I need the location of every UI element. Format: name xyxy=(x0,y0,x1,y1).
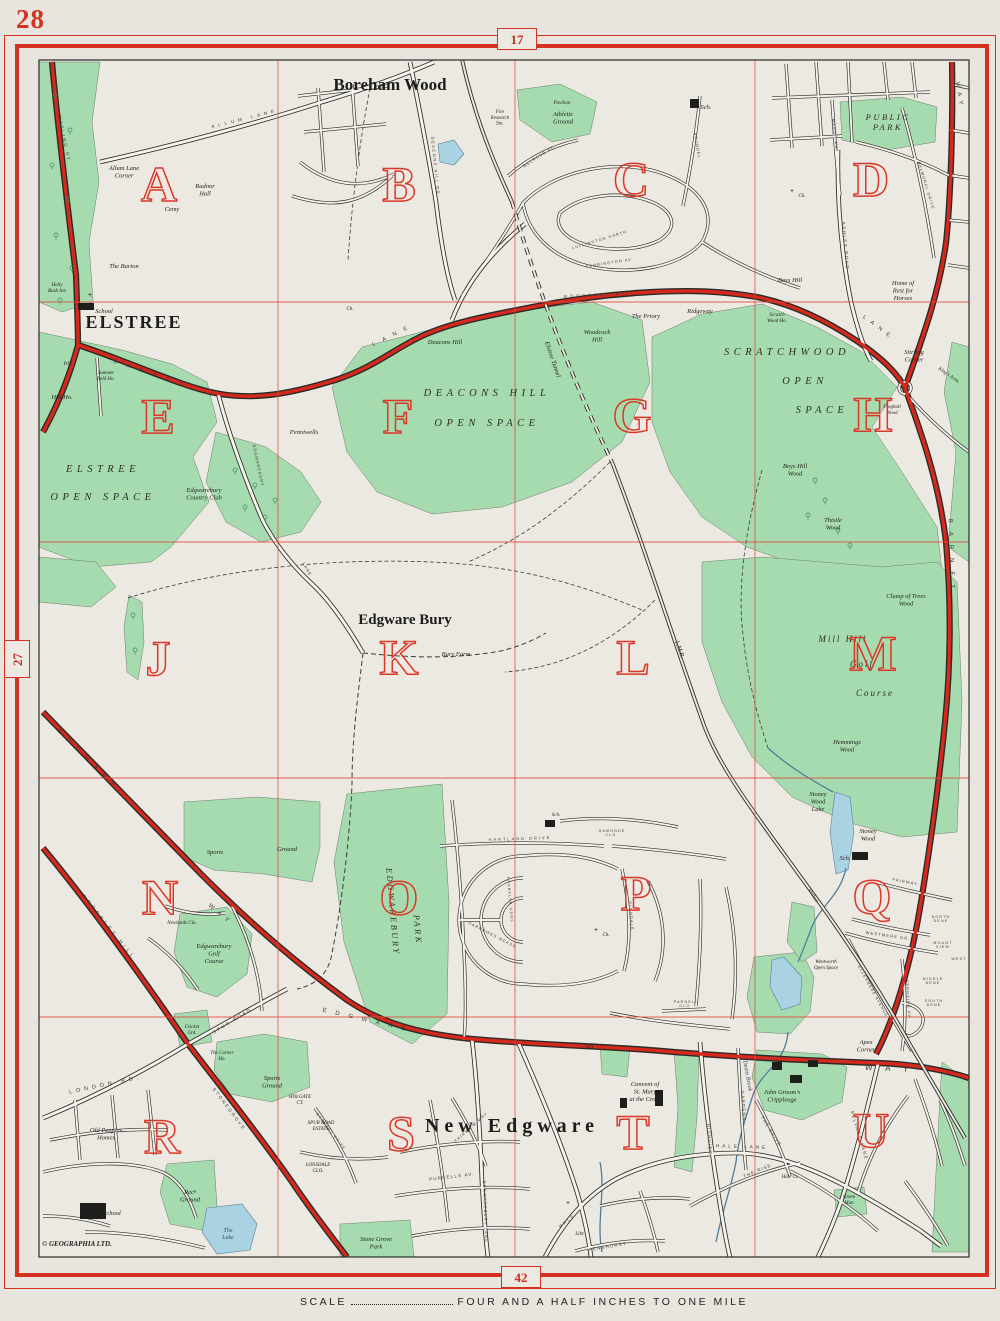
adjacent-page-bottom: 42 xyxy=(501,1266,541,1288)
label-course: Course xyxy=(856,688,894,698)
label-stoney-wood: StoneyWood xyxy=(859,828,876,842)
label-bury-farm: Bury Farm xyxy=(442,651,471,658)
label-summer-field-ho: Summerfield Ho. xyxy=(97,371,115,382)
green-area-watling-street-woods xyxy=(39,62,100,312)
grid-letter-F: F xyxy=(383,388,414,444)
label-edgware-bury: Edgware Bury xyxy=(358,612,452,628)
label-sch: Sch. xyxy=(552,813,560,818)
building-3 xyxy=(852,852,868,860)
adjacent-page-bottom-number: 42 xyxy=(515,1271,528,1284)
grid-letter-U: U xyxy=(853,1102,889,1158)
label-sports-ground: SportsGround xyxy=(262,1075,283,1089)
grid-letter-M: M xyxy=(849,625,896,681)
grid-letter-K: K xyxy=(380,629,419,685)
label-edgwarebury-country-club: EdgwareburyCountry Club xyxy=(185,487,222,501)
label-sch: Sch. xyxy=(839,855,850,862)
grid-letter-R: R xyxy=(144,1108,181,1164)
label-pavilion: Pavilion xyxy=(553,101,571,106)
label-open: OPEN xyxy=(782,376,827,387)
label-sch: Sch. xyxy=(700,104,711,111)
building-8 xyxy=(790,1075,802,1083)
label-ground: Ground xyxy=(277,846,298,853)
grid-letter-C: C xyxy=(613,151,649,207)
label-open-space: OPEN SPACE xyxy=(50,492,155,503)
label-ch: Ch. xyxy=(602,933,609,938)
grid-letter-B: B xyxy=(382,156,415,212)
grid-letter-Q: Q xyxy=(853,868,892,924)
label-ch: Ch. xyxy=(346,307,353,312)
grid-letter-P: P xyxy=(621,865,652,921)
label-elstree: ELSTREE xyxy=(65,464,140,475)
label-john-groom-s-crippleage: John Groom'sCrippleage xyxy=(764,1089,801,1103)
adjacent-page-left-number: 27 xyxy=(11,653,24,666)
church-cross-icon: + xyxy=(566,1199,570,1207)
label-north-dene: NORTHDENE xyxy=(932,915,951,923)
label-open-space: OPEN SPACE xyxy=(434,418,539,429)
copyright-notice: © GEOGRAPHIA LTD. xyxy=(42,1240,112,1248)
label-space: SPACE xyxy=(796,405,849,416)
scale-label: SCALE xyxy=(300,1296,347,1308)
label-thistle-wood: ThistleWood xyxy=(824,517,842,531)
label-boys-hill: Boys Hill xyxy=(778,277,803,284)
label-stirling-corner: StirlingCorner xyxy=(904,349,924,363)
scale-text: FOUR AND A HALF INCHES TO ONE MILE xyxy=(457,1296,748,1308)
building-9 xyxy=(808,1060,818,1067)
label-the-priory: The Priory xyxy=(632,313,660,320)
grid-letter-A: A xyxy=(141,156,177,212)
label-scratch-wood-ho: ScratchWood Ho. xyxy=(767,313,787,324)
adjacent-page-top-number: 17 xyxy=(511,33,524,46)
grid-letter-N: N xyxy=(142,869,178,925)
label-south-dene: SOUTHDENE xyxy=(925,999,944,1007)
label-scratchwood: SCRATCHWOOD xyxy=(724,347,850,358)
label-hill-ho: Hill Ho. xyxy=(50,394,73,401)
label-p-o: P.O. xyxy=(585,1046,595,1051)
label-the-lake: TheLake xyxy=(221,1228,234,1241)
grid-letter-D: D xyxy=(853,151,889,207)
scale-leader xyxy=(351,1304,453,1305)
label-boreham-wood: Boreham Wood xyxy=(333,75,447,94)
label-wentworth-open-space: WentworthOpen Space xyxy=(814,960,839,971)
map-canvas: ++++Boreham WoodELSTREEEdgware BuryNew E… xyxy=(0,0,1000,1321)
label-penniwells: Penniwells xyxy=(289,429,319,436)
label-deacons-hill: Deacons Hill xyxy=(427,339,463,346)
label-school: School xyxy=(95,308,113,315)
label-new-edgware: New Edgware xyxy=(425,1115,599,1137)
label-west: WEST xyxy=(951,957,966,961)
church-cross-icon: + xyxy=(790,187,794,195)
grid-letter-J: J xyxy=(146,630,171,686)
church-cross-icon: + xyxy=(88,291,92,299)
grid-letter-S: S xyxy=(387,1105,415,1161)
adjacent-page-top: 17 xyxy=(497,28,537,50)
church-cross-icon: + xyxy=(594,926,598,934)
grid-letter-L: L xyxy=(616,629,649,685)
label-stoney-wood-lake: StoneyWoodLake xyxy=(809,791,826,813)
scale-line: SCALE FOUR AND A HALF INCHES TO ONE MILE xyxy=(300,1296,748,1308)
adjacent-page-left: 27 xyxy=(4,640,30,678)
label-middle-dene: MIDDLEDENE xyxy=(923,977,944,985)
label-p-o: P.O. xyxy=(63,362,73,367)
label-ridgeway: Ridgeway xyxy=(686,308,713,315)
label-elstree: ELSTREE xyxy=(85,312,182,332)
label-libr: Libr. xyxy=(574,1232,584,1237)
grid-letter-O: O xyxy=(380,869,419,925)
building-7 xyxy=(772,1062,782,1070)
building-5 xyxy=(80,1203,106,1219)
label-ch: Ch. xyxy=(798,194,805,199)
label-sports: Sports xyxy=(207,849,224,856)
building-2 xyxy=(690,99,699,108)
label-mount-view: MOUNTVIEW xyxy=(933,941,952,949)
label-school: School xyxy=(103,1210,121,1217)
label-hale-ct: Hale Ct. xyxy=(781,1175,799,1180)
building-1 xyxy=(78,303,94,310)
grid-letter-H: H xyxy=(854,386,893,442)
label-athletic-ground: AthleticGround xyxy=(552,111,574,125)
atlas-page: 28 17 27 42 ++++Boreham WoodELSTREEEdgwa… xyxy=(0,0,1000,1321)
building-4 xyxy=(545,820,555,827)
grid-letter-G: G xyxy=(613,387,652,443)
grid-letter-T: T xyxy=(616,1104,649,1160)
grid-letter-E: E xyxy=(141,388,174,444)
label-the-barton: The Barton xyxy=(109,263,138,270)
label-home-of-rest-for-horses: Home ofRest forHorses xyxy=(891,280,915,302)
label-deacons-hill: DEACONS HILL xyxy=(423,388,551,399)
